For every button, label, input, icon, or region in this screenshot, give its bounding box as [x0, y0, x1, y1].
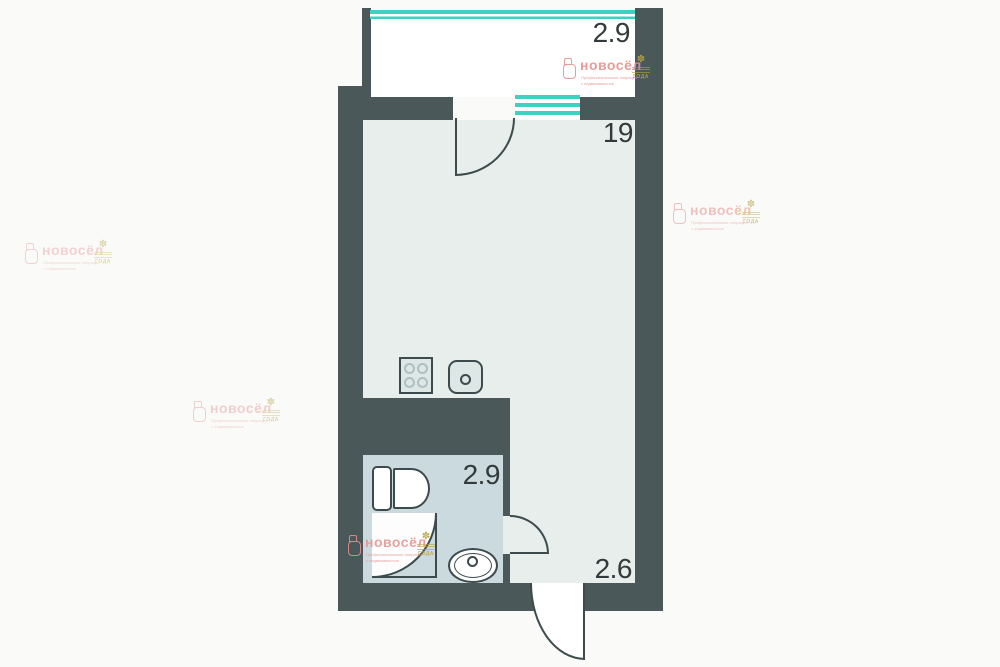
- award-flower-icon: ✽: [741, 200, 761, 210]
- wall-balcony-divider-left: [338, 97, 453, 120]
- toilet-icon: [372, 466, 392, 511]
- wall-balcony-left: [362, 8, 371, 97]
- award-badge: ✽ ГОДА: [741, 200, 761, 225]
- area-label-balcony: 2.9: [540, 17, 630, 49]
- novosel-logo-text: новосёл: [210, 400, 272, 416]
- room-window-icon: [515, 95, 580, 119]
- novosel-logo-text: новосёл: [42, 242, 104, 258]
- wall-left: [338, 86, 363, 611]
- burner-icon: [417, 363, 428, 374]
- wall-right: [635, 8, 663, 611]
- burner-icon: [404, 377, 415, 388]
- wall-bottom: [338, 583, 663, 611]
- award-flower-icon: ✽: [261, 398, 281, 408]
- novosel-logo-icon: [673, 203, 686, 225]
- burner-icon: [404, 363, 415, 374]
- stove-icon: [399, 357, 433, 394]
- entry-door-arc-icon: [530, 583, 585, 660]
- drain-icon: [467, 556, 478, 567]
- award-badge: ✽ ГОДА: [261, 398, 281, 423]
- novosel-watermark: новосёл Профессиональные операциис недви…: [25, 240, 115, 278]
- burner-icon: [417, 377, 428, 388]
- wall-kitchen-block: [338, 398, 510, 455]
- bathroom-door-threshold: [503, 516, 510, 554]
- floorplan: 2.9 19 2.9 2.6 новосёл Профессиональные …: [0, 0, 1000, 667]
- novosel-watermark: новосёл Профессиональные операциис недви…: [673, 200, 763, 238]
- drain-icon: [460, 374, 471, 385]
- award-flower-icon: ✽: [93, 240, 113, 250]
- novosel-logo-text: новосёл: [690, 202, 752, 218]
- area-label-bathroom: 2.9: [410, 459, 500, 491]
- area-label-living: 19: [543, 117, 633, 149]
- area-label-hallway: 2.6: [542, 553, 632, 585]
- novosel-logo-icon: [193, 401, 206, 423]
- award-badge: ✽ ГОДА: [93, 240, 113, 265]
- kitchen-sink-icon: [448, 360, 483, 394]
- novosel-logo-icon: [25, 243, 38, 265]
- novosel-watermark: новосёл Профессиональные операциис недви…: [193, 398, 283, 436]
- bathroom-sink-icon: [448, 548, 498, 583]
